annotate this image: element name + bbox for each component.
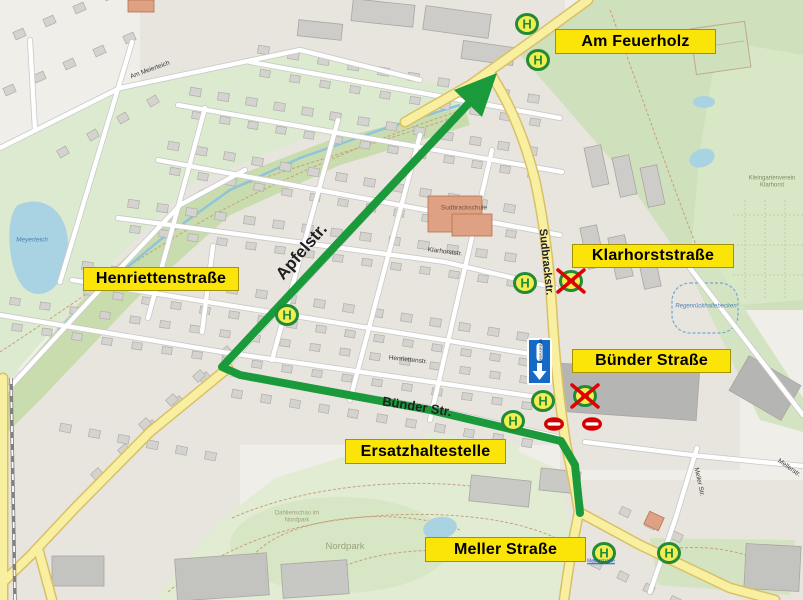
bus-stop-cancelled-icon: H	[572, 385, 598, 407]
bus-stop-icon: H	[515, 274, 536, 293]
bus-stop-icon: H	[594, 544, 615, 563]
bus-stop-icon: H	[517, 15, 538, 34]
svg-text:H: H	[664, 546, 673, 561]
bus-stop-icon: H	[659, 544, 680, 563]
svg-text:H: H	[599, 546, 608, 561]
svg-text:H: H	[533, 53, 542, 68]
no-entry-icon	[582, 417, 602, 431]
svg-text:H: H	[282, 308, 291, 323]
svg-text:H: H	[522, 17, 531, 32]
no-entry-icon	[544, 417, 564, 431]
svg-text:H: H	[520, 276, 529, 291]
svg-text:H: H	[508, 414, 517, 429]
map-canvas: HHHHHHHHHHEinbahnstraße	[0, 0, 803, 600]
svg-text:Einbahnstraße: Einbahnstraße	[539, 339, 544, 366]
bus-stop-icon: H	[503, 412, 524, 431]
one-way-sign-icon: Einbahnstraße	[528, 339, 551, 384]
bus-stop-icon: H	[533, 392, 554, 411]
detour-map: HHHHHHHHHHEinbahnstraße Am Feuerholz Hen…	[0, 0, 803, 600]
sports-field	[690, 21, 751, 74]
bus-stop-icon: H	[528, 51, 549, 70]
svg-text:H: H	[538, 394, 547, 409]
bus-stop-icon: H	[277, 306, 298, 325]
bus-stop-cancelled-icon: H	[558, 270, 584, 292]
